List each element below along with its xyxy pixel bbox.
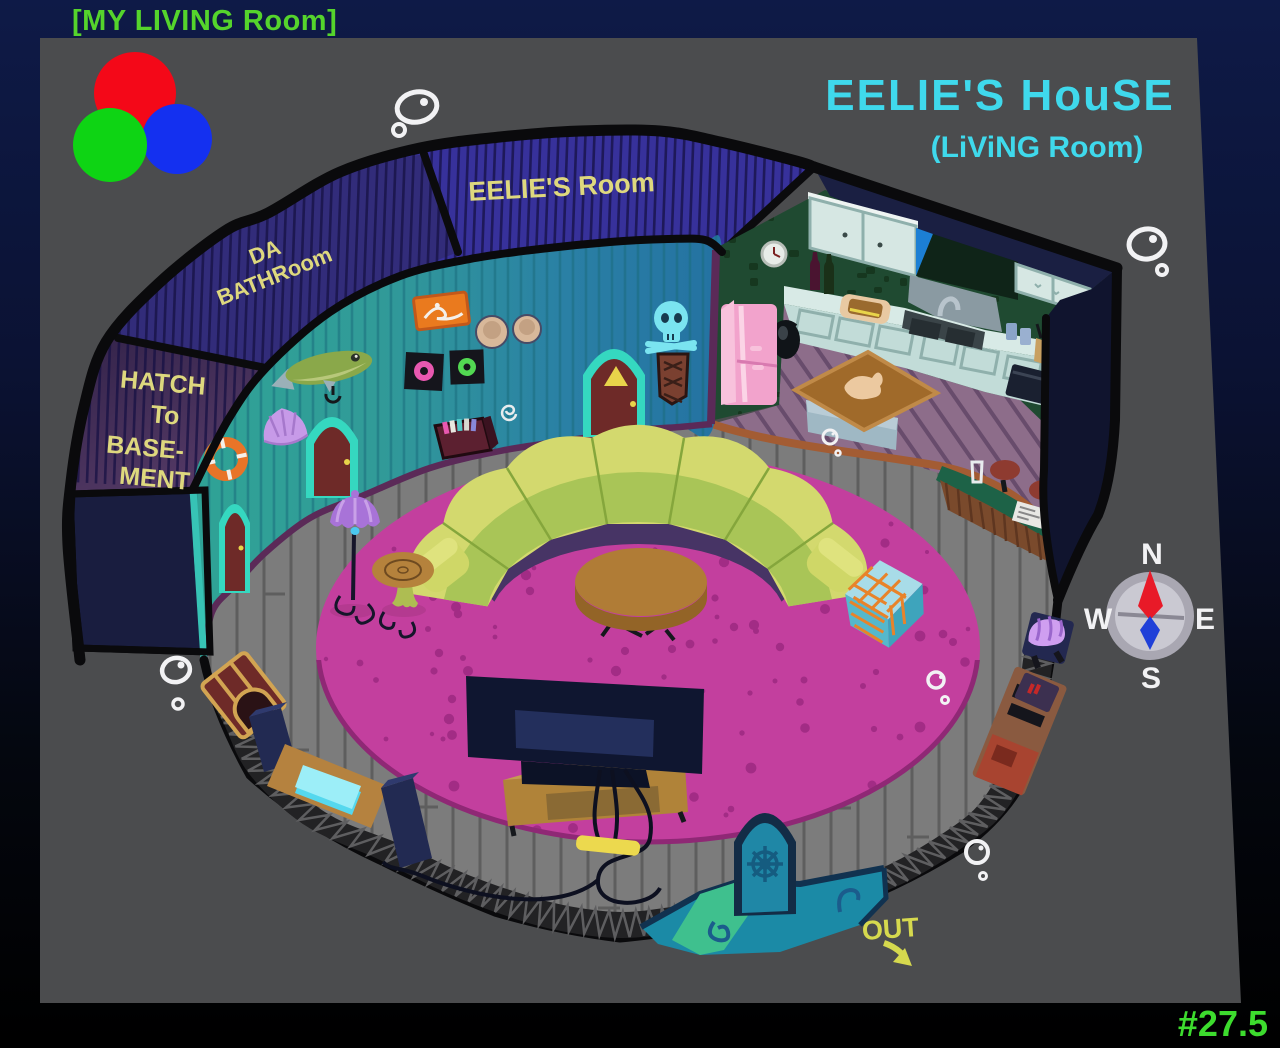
svg-text:N: N — [1141, 538, 1163, 571]
svg-text:W: W — [1084, 603, 1113, 636]
svg-text:[MY LIVING Room]: [MY LIVING Room] — [72, 5, 337, 37]
svg-text:#27.5: #27.5 — [1178, 1003, 1268, 1043]
svg-text:EELIE'S HouSE: EELIE'S HouSE — [825, 71, 1174, 120]
svg-text:To: To — [150, 400, 181, 430]
svg-text:S: S — [1141, 662, 1161, 695]
svg-text:OUT: OUT — [861, 912, 920, 946]
svg-text:(LiViNG Room): (LiViNG Room) — [931, 131, 1144, 164]
svg-text:E: E — [1195, 603, 1215, 636]
